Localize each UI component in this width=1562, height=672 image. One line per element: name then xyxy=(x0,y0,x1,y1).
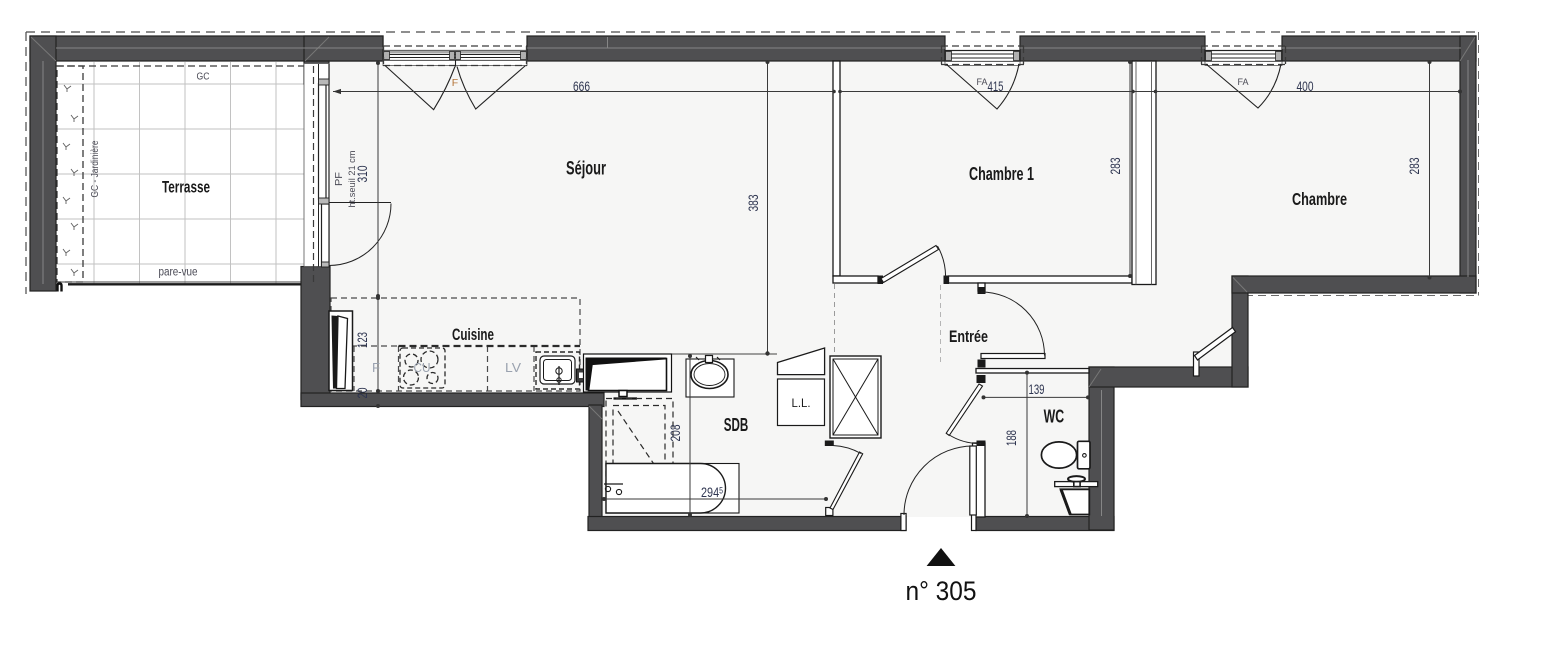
svg-text:283: 283 xyxy=(1107,157,1123,174)
svg-text:GC - Jardinière: GC - Jardinière xyxy=(89,140,101,197)
svg-text:F: F xyxy=(452,77,458,89)
svg-text:383: 383 xyxy=(745,194,761,211)
svg-text:n° 305: n° 305 xyxy=(906,576,977,606)
svg-text:CU: CU xyxy=(414,360,431,375)
svg-text:Terrasse: Terrasse xyxy=(162,178,210,197)
svg-text:WC: WC xyxy=(1044,406,1065,427)
svg-text:666: 666 xyxy=(573,78,590,94)
svg-text:FA: FA xyxy=(1238,77,1250,88)
svg-text:123: 123 xyxy=(354,332,370,348)
svg-text:SDB: SDB xyxy=(724,414,749,435)
svg-text:PF: PF xyxy=(333,172,345,186)
svg-text:283: 283 xyxy=(1406,157,1422,174)
svg-text:400: 400 xyxy=(1297,78,1314,94)
svg-text:pare-vue: pare-vue xyxy=(159,267,198,279)
svg-text:20: 20 xyxy=(354,387,370,398)
svg-text:FA: FA xyxy=(977,77,989,88)
svg-text:GC: GC xyxy=(197,71,210,83)
svg-text:415: 415 xyxy=(988,78,1004,94)
svg-text:LV: LV xyxy=(505,360,521,375)
svg-text:139: 139 xyxy=(1029,381,1045,397)
svg-text:Séjour: Séjour xyxy=(566,159,606,180)
svg-text:208: 208 xyxy=(667,424,683,441)
svg-text:Chambre 1: Chambre 1 xyxy=(969,163,1034,184)
svg-text:Cuisine: Cuisine xyxy=(452,326,494,344)
svg-text:L.L.: L.L. xyxy=(792,396,811,410)
svg-text:Entrée: Entrée xyxy=(949,327,988,346)
svg-text:188: 188 xyxy=(1003,430,1019,446)
svg-text:Chambre: Chambre xyxy=(1292,189,1347,209)
svg-text:ht.seuil 21 cm: ht.seuil 21 cm xyxy=(347,151,357,208)
svg-text:F: F xyxy=(372,360,380,375)
